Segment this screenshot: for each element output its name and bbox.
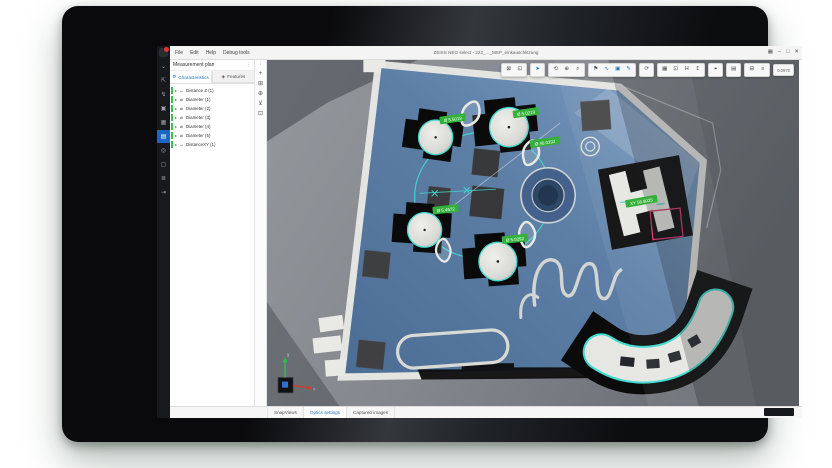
expand-arrow-icon[interactable]: ▸: [175, 115, 177, 120]
rect-tool-icon[interactable]: ▣: [612, 65, 623, 75]
status-ok-bar: [171, 96, 173, 103]
snapshot-image-icon[interactable]: ▦: [659, 65, 670, 75]
diameter-icon: ⌀: [179, 124, 184, 130]
close-icon[interactable]: ✕: [794, 50, 799, 56]
zoom-view-icon[interactable]: ⌕: [572, 65, 583, 75]
select-cursor-icon[interactable]: ➤: [532, 65, 543, 75]
status-ok-bar: [171, 123, 173, 130]
document-view-icon[interactable]: ≡: [757, 65, 768, 75]
tree-item-label: Diameter (2): [186, 106, 210, 111]
tree-item-label: Diameter (4): [186, 124, 210, 129]
menu-bar: File Edit Help Debug tools: [170, 50, 250, 56]
tree-item-diameter-2[interactable]: ▸ ⌀ Diameter (2): [170, 104, 254, 113]
tree-item-label: Diameter (3): [186, 115, 210, 120]
move-stage-icon[interactable]: ⊕: [258, 91, 263, 97]
exit-icon[interactable]: ⇥: [157, 186, 170, 199]
minimize-icon[interactable]: –: [778, 50, 781, 56]
screen: ⌄ ⇱ ↯ ▣ ▦ ▤ ◎ ▢ ≣ ⇥ File Edit Help Debug…: [157, 46, 802, 418]
tab-label: Features: [227, 74, 245, 79]
image-icon[interactable]: ▣: [157, 102, 170, 115]
tab-captured-images[interactable]: Captured images: [347, 407, 395, 418]
status-ok-bar: [171, 141, 173, 148]
expand-arrow-icon[interactable]: ▸: [175, 133, 177, 138]
maximize-icon[interactable]: □: [786, 50, 789, 56]
export-image-icon[interactable]: ↥: [692, 65, 703, 75]
tree-item-label: Distance Z (1): [186, 88, 214, 93]
viewport-tool-strip: ⋮ + ⊞ ⊕ ⊻ ⊡: [255, 60, 267, 406]
export-window-icon[interactable]: ⇱: [157, 74, 170, 87]
tree-item-diameter-3[interactable]: ▸ ⌀ Diameter (3): [170, 113, 254, 122]
fit-view-icon[interactable]: ⊠: [503, 65, 514, 75]
tree-item-label: Diameter (5): [186, 133, 210, 138]
diameter-icon: ⌀: [179, 106, 184, 112]
tab-characteristics[interactable]: ⚙ Characteristics: [170, 71, 212, 83]
layout-icon[interactable]: ▦: [768, 50, 773, 56]
measurement-plan-icon[interactable]: ▤: [157, 130, 170, 143]
search-zoom-icon[interactable]: ⌖: [710, 65, 721, 75]
viewport-toolbar: ⊠ ⊡ ➤ ⟲ ⊕ ⌕ ⚑ ∿ ▣ ✎ ⟳: [501, 63, 794, 77]
layers-icon[interactable]: ▤: [728, 65, 739, 75]
expand-arrow-icon[interactable]: ▸: [175, 124, 177, 129]
tab-snapviews[interactable]: SnapViews: [267, 407, 304, 418]
collapse-icon[interactable]: ⌄: [157, 60, 170, 73]
scene: Ø 5.5019 Ø 5.0219 Ø 40.0292 Ø 5.4672: [267, 60, 799, 406]
expand-arrow-icon[interactable]: ▸: [175, 88, 177, 93]
tree-item-diameter-1[interactable]: ▸ ⌀ Diameter (1): [170, 95, 254, 104]
copy-view-icon[interactable]: ⊞: [258, 81, 263, 87]
status-thumbnail[interactable]: [764, 408, 794, 416]
status-bar: SnapViews Optics settings Captured image…: [170, 406, 802, 418]
pan-view-icon[interactable]: ⊕: [561, 65, 572, 75]
status-ok-bar: [171, 105, 173, 112]
title-bar: File Edit Help Debug tools ZEISS NEO sel…: [170, 46, 802, 60]
expand-arrow-icon[interactable]: ▸: [175, 142, 177, 147]
status-ok-bar: [171, 132, 173, 139]
histogram-icon[interactable]: H: [681, 65, 692, 75]
display-settings-icon[interactable]: ⊟: [746, 65, 757, 75]
strip-more-icon[interactable]: ⋮: [258, 61, 263, 67]
tree-item-label: Diameter (1): [186, 97, 210, 102]
refresh-view-icon[interactable]: ⟳: [641, 65, 652, 75]
panel-menu-icon[interactable]: ⋮: [246, 62, 251, 68]
distance-icon: ↔: [179, 142, 184, 147]
diameter-icon: ⌀: [179, 97, 184, 103]
panel-tabs: ⚙ Characteristics ◈ Features: [170, 71, 254, 84]
monitor-bezel: ⌄ ⇱ ↯ ▣ ▦ ▤ ◎ ▢ ≣ ⇥ File Edit Help Debug…: [62, 6, 768, 442]
tab-label: Characteristics: [178, 75, 208, 80]
app-sidebar: ⌄ ⇱ ↯ ▣ ▦ ▤ ◎ ▢ ≣ ⇥: [157, 46, 170, 418]
tree-item-distance-xy[interactable]: ▸ ↔ DistanceXY (1): [170, 140, 254, 149]
status-ok-bar: [171, 87, 173, 94]
3d-viewport[interactable]: Ø 5.5019 Ø 5.0219 Ø 40.0292 Ø 5.4672: [267, 60, 799, 406]
menu-file[interactable]: File: [175, 50, 183, 56]
expand-arrow-icon[interactable]: ▸: [175, 97, 177, 102]
flag-tool-icon[interactable]: ⚑: [590, 65, 601, 75]
menu-help[interactable]: Help: [206, 50, 216, 56]
tab-optics-settings[interactable]: Optics settings: [304, 407, 347, 418]
tree-item-diameter-5[interactable]: ▸ ⌀ Diameter (5): [170, 131, 254, 140]
alignment-icon[interactable]: ⊻: [258, 101, 262, 107]
crop-image-icon[interactable]: ⊡: [670, 65, 681, 75]
app-logo-icon: [159, 48, 168, 57]
expand-arrow-icon[interactable]: ▸: [175, 106, 177, 111]
diameter-icon: ⌀: [179, 115, 184, 121]
report-icon[interactable]: ≣: [157, 172, 170, 185]
status-ok-bar: [171, 114, 173, 121]
window-title: ZEISS NEO select - 222_..._MSP_einkausch…: [170, 50, 802, 55]
tree-item-label: DistanceXY (1): [186, 142, 215, 147]
target-icon[interactable]: ◎: [157, 144, 170, 157]
scale-readout[interactable]: 0.0970: [773, 64, 794, 76]
pen-tool-icon[interactable]: ✎: [623, 65, 634, 75]
add-feature-icon[interactable]: +: [259, 71, 263, 77]
menu-edit[interactable]: Edit: [190, 50, 199, 56]
tree-item-distance-z[interactable]: ▸ ↔ Distance Z (1): [170, 86, 254, 95]
polyline-tool-icon[interactable]: ∿: [601, 65, 612, 75]
fit-screen-icon[interactable]: ⊡: [514, 65, 525, 75]
gallery-icon[interactable]: ▦: [157, 116, 170, 129]
tab-features[interactable]: ◈ Features: [212, 71, 254, 83]
panel-title: Measurement plan: [173, 62, 214, 68]
features-icon: ◈: [222, 74, 226, 80]
characteristics-tree: ▸ ↔ Distance Z (1) ▸ ⌀ Diameter (1) ▸ ⌀ …: [170, 84, 254, 149]
rotate-view-icon[interactable]: ⟲: [550, 65, 561, 75]
display-mode-icon[interactable]: ⊡: [258, 111, 263, 117]
snapshot-icon[interactable]: ▢: [157, 158, 170, 171]
diameter-icon: ⌀: [179, 133, 184, 139]
measurement-plan-panel: Measurement plan ⋮ ⚙ Characteristics ◈ F…: [170, 60, 255, 406]
window-controls: ▦ – □ ✕: [768, 46, 799, 60]
characteristics-icon: ⚙: [172, 74, 176, 80]
menu-debug-tools[interactable]: Debug tools: [223, 50, 250, 56]
probe-icon[interactable]: ↯: [157, 88, 170, 101]
tree-item-diameter-4[interactable]: ▸ ⌀ Diameter (4): [170, 122, 254, 131]
distance-icon: ↔: [179, 88, 184, 93]
center-bore: [521, 168, 575, 223]
